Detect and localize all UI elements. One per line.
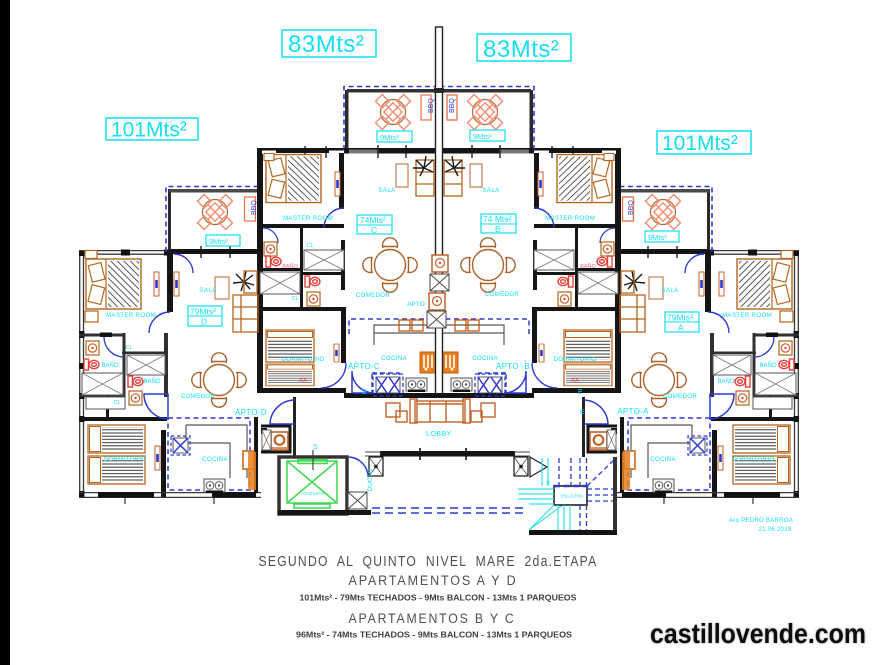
svg-text:BAÑO: BAÑO (580, 263, 596, 270)
svg-text:DORMITORIO: DORMITORIO (281, 356, 324, 363)
svg-text:79Mts²: 79Mts² (190, 307, 216, 317)
svg-text:APTO -B: APTO -B (496, 362, 530, 371)
svg-text:APTO: APTO (407, 301, 425, 308)
svg-text:COCINA: COCINA (472, 355, 498, 362)
svg-text:SALA: SALA (378, 187, 396, 194)
svg-text:COCINA: COCINA (381, 355, 407, 362)
svg-text:DORMITORIO: DORMITORIO (553, 356, 596, 363)
svg-text:DORMITORIO: DORMITORIO (103, 456, 146, 463)
svg-text:21.06.2019: 21.06.2019 (758, 527, 791, 533)
svg-text:S: S (546, 481, 550, 487)
svg-text:castillovende.com: castillovende.com (650, 618, 866, 649)
svg-text:79Mts²: 79Mts² (667, 313, 693, 323)
svg-text:LOBBY: LOBBY (426, 431, 452, 438)
svg-text:101Mts²: 101Mts² (662, 132, 738, 155)
svg-text:APARTAMENTOS A Y D: APARTAMENTOS A Y D (349, 573, 518, 588)
svg-text:DUCTO: DUCTO (367, 469, 374, 492)
svg-text:COMEDOR: COMEDOR (663, 393, 698, 400)
svg-text:MASTER ROOM: MASTER ROOM (722, 312, 772, 319)
svg-text:BBQ: BBQ (449, 98, 456, 113)
svg-text:MASTER ROOM: MASTER ROOM (283, 215, 333, 222)
svg-text:BAÑO: BAÑO (282, 263, 298, 270)
svg-text:101Mts² - 79Mts TECHADOS - 9Mt: 101Mts² - 79Mts TECHADOS - 9Mts BALCON -… (300, 593, 577, 603)
svg-text:XX: XX (299, 378, 307, 384)
svg-text:D: D (201, 317, 207, 327)
svg-text:CL: CL (125, 345, 132, 351)
svg-text:APARTAMENTOS B Y C: APARTAMENTOS B Y C (349, 611, 516, 626)
svg-text:BBQ: BBQ (428, 98, 435, 113)
svg-text:APTO-A: APTO-A (617, 407, 649, 416)
svg-text:XX: XX (571, 378, 579, 384)
svg-text:COCINA: COCINA (650, 456, 676, 463)
svg-text:SALA: SALA (199, 287, 217, 294)
svg-text:BAÑO: BAÑO (101, 362, 118, 369)
svg-text:74 Mts²: 74 Mts² (483, 214, 512, 224)
svg-text:96Mts² - 74Mts TECHADOS - 9Mts: 96Mts² - 74Mts TECHADOS - 9Mts BALCON - … (296, 630, 572, 640)
svg-text:83Mts²: 83Mts² (288, 31, 364, 58)
svg-text:COMEDOR: COMEDOR (485, 291, 520, 298)
svg-text:9Mts²: 9Mts² (209, 237, 228, 246)
svg-text:APTO-C: APTO-C (348, 362, 380, 371)
svg-text:BAÑO: BAÑO (143, 378, 160, 385)
svg-text:BAÑO: BAÑO (717, 378, 734, 385)
svg-text:E: E (580, 409, 585, 416)
svg-text:Arq PEDRO BARROA: Arq PEDRO BARROA (729, 518, 793, 524)
svg-text:A: A (678, 323, 684, 333)
svg-text:SALA: SALA (661, 287, 679, 294)
svg-text:ESCALERA: ESCALERA (561, 494, 584, 499)
svg-text:CL: CL (291, 296, 298, 302)
svg-text:MASTER ROOM: MASTER ROOM (545, 215, 595, 222)
svg-text:9Mts²: 9Mts² (473, 132, 492, 141)
svg-text:CL: CL (113, 400, 120, 406)
svg-text:S: S (313, 444, 318, 451)
svg-text:E: E (578, 389, 583, 396)
svg-text:9Mts²: 9Mts² (648, 233, 667, 242)
svg-text:CL: CL (306, 243, 313, 249)
svg-text:BBQ: BBQ (251, 200, 258, 215)
svg-text:C: C (371, 225, 377, 235)
svg-text:COMEDOR: COMEDOR (356, 292, 391, 299)
svg-text:MASTER ROOM: MASTER ROOM (106, 312, 156, 319)
svg-text:E: E (362, 389, 367, 396)
svg-text:DORMITORIO: DORMITORIO (731, 456, 774, 463)
svg-text:9Mts²: 9Mts² (380, 133, 399, 142)
svg-text:83Mts²: 83Mts² (483, 36, 559, 63)
svg-text:ASCENSOR: ASCENSOR (301, 491, 325, 496)
svg-text:COCINA: COCINA (202, 456, 228, 463)
svg-text:SALA: SALA (482, 187, 500, 194)
svg-text:COMEDOR: COMEDOR (181, 393, 216, 400)
svg-text:SEGUNDO AL QUINTO NIVEL MA: SEGUNDO AL QUINTO NIVEL MARE 2da.ETAPA (259, 554, 598, 570)
svg-text:101Mts²: 101Mts² (111, 119, 187, 142)
svg-text:74Mts²: 74Mts² (360, 215, 386, 225)
svg-text:APTO-D: APTO-D (235, 408, 267, 417)
svg-text:B: B (495, 224, 501, 234)
svg-text:BAÑO: BAÑO (759, 362, 776, 369)
